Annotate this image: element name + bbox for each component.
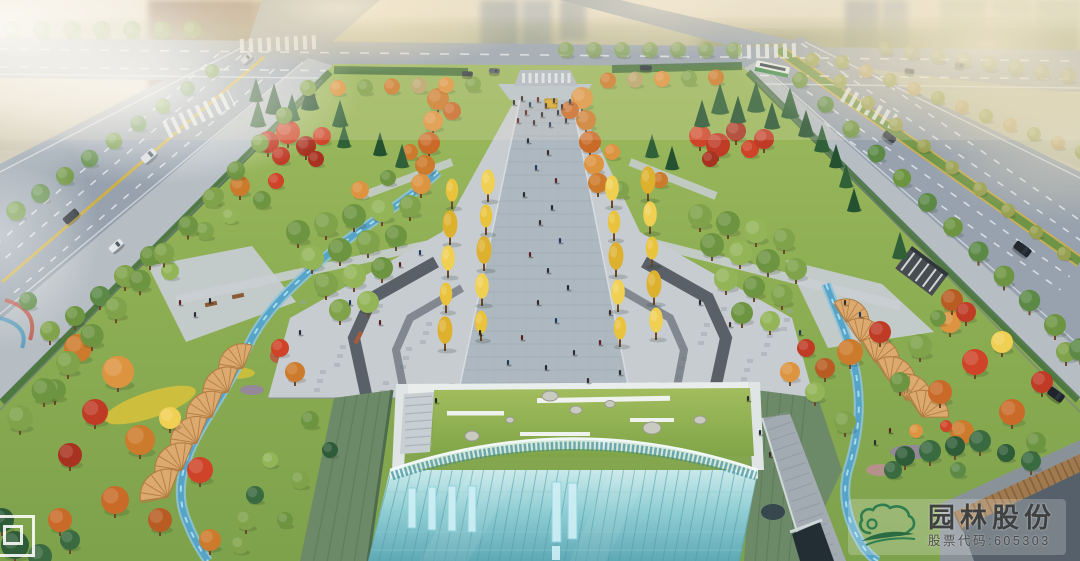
watermark-stock-code: 股票代码:605303 [928, 535, 1056, 548]
company-watermark: 园林股份 股票代码:605303 [848, 499, 1066, 555]
watermark-company-name: 园林股份 [928, 504, 1056, 532]
rendering-canvas: 园林股份 股票代码:605303 [0, 0, 1080, 561]
park-aerial-rendering [0, 0, 1080, 561]
cloud-leaf-logo-icon [856, 503, 918, 549]
roof-vent [761, 504, 785, 520]
sunken-building [268, 382, 846, 561]
glass-roof [368, 470, 758, 561]
nested-squares-mark [0, 515, 35, 557]
